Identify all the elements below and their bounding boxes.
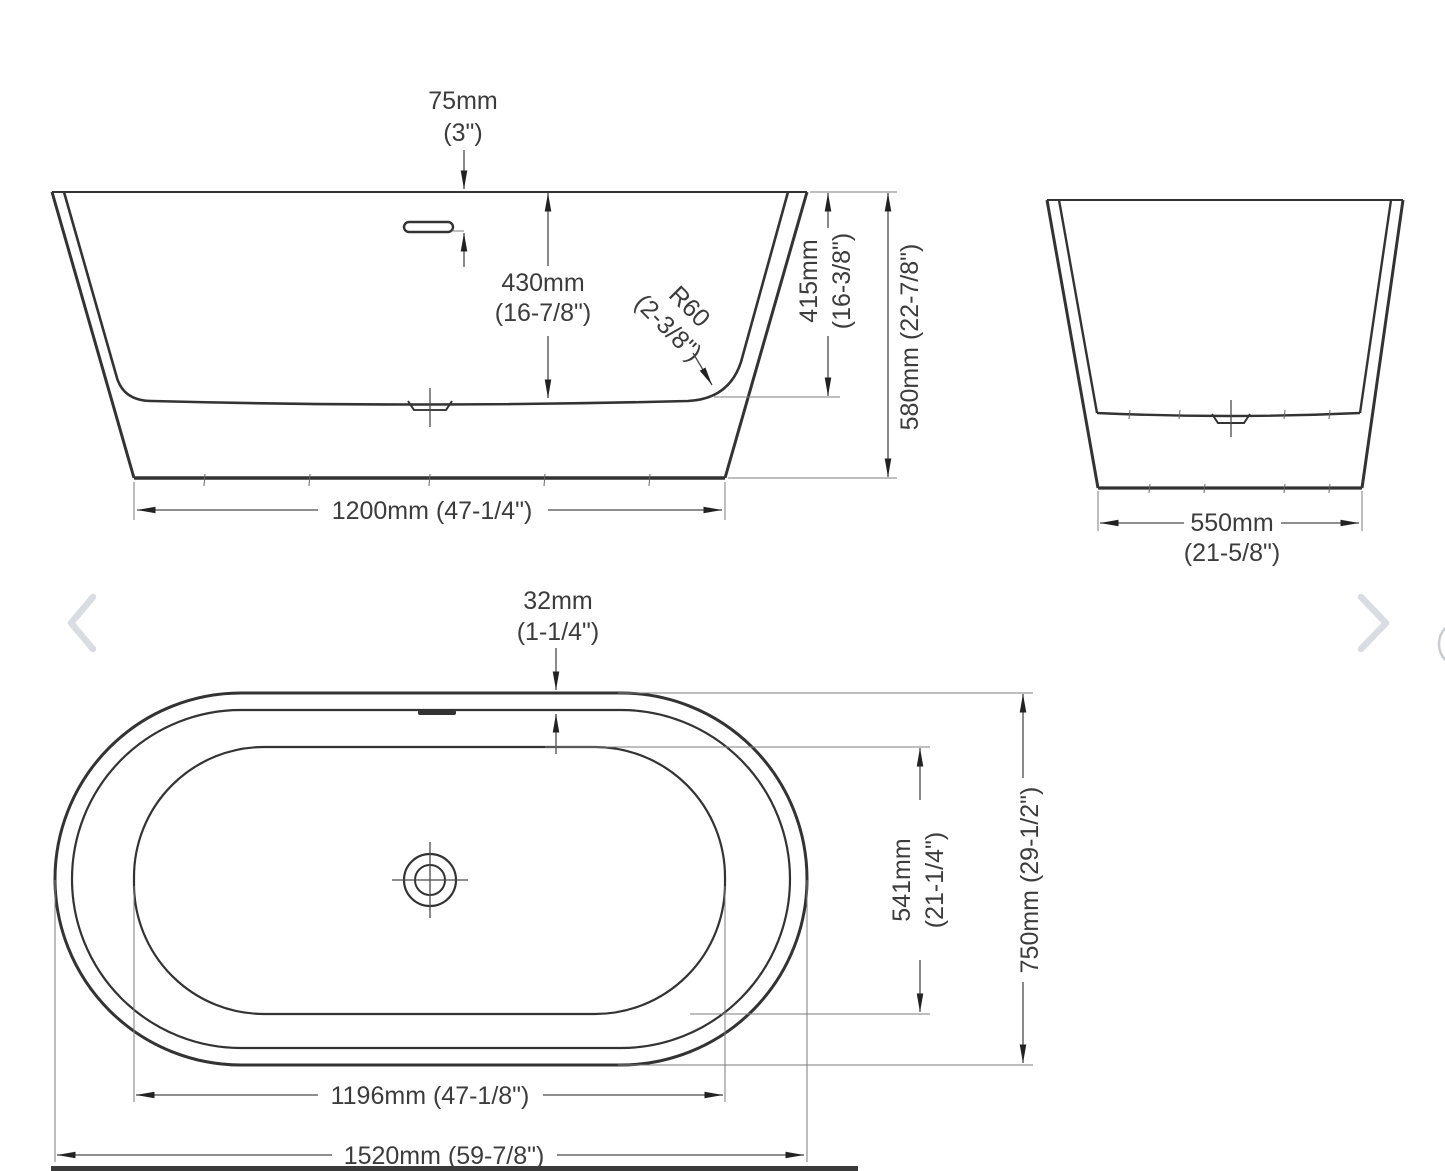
side-drain	[408, 388, 452, 427]
dim-base-width: 550mm (21-5/8")	[1098, 491, 1362, 567]
chevron-right-icon[interactable]	[1361, 597, 1386, 649]
inner-height-mm-label: 415mm	[795, 239, 823, 322]
plan-outer-rim	[55, 693, 807, 1065]
inner-depth-mm-label: 430mm	[501, 269, 584, 297]
inner-height-in-label: (16-3/8")	[828, 233, 856, 329]
dim-overall-length: 1520mm (59-7/8")	[55, 880, 807, 1170]
dim-inner-height: 415mm (16-3/8")	[714, 193, 856, 397]
dim-rim-width: 32mm (1-1/4")	[517, 587, 600, 754]
plan-rim-inner-edge	[72, 710, 790, 1048]
plan-view: 32mm (1-1/4") 541mm (21-1/4") 750mm (29-…	[55, 587, 1044, 1170]
base-length-label: 1200mm (47-1/4")	[332, 497, 533, 525]
overflow-height-in-label: (3")	[443, 119, 482, 147]
rim-width-mm-label: 32mm	[523, 587, 592, 615]
edge-circle-button[interactable]	[1439, 621, 1445, 667]
base-width-in-label: (21-5/8")	[1184, 539, 1280, 567]
overflow-height-mm-label: 75mm	[428, 87, 497, 115]
technical-drawing-page: 75mm (3") 430mm (16-7/8") R60 (2-3/8")	[0, 0, 1445, 1171]
rim-width-in-label: (1-1/4")	[517, 618, 600, 646]
base-width-mm-label: 550mm	[1190, 509, 1273, 537]
dim-overall-height: 580mm (22-7/8")	[728, 192, 924, 478]
dim-overall-width: 750mm (29-1/2")	[618, 693, 1044, 1065]
end-outer-walls	[1047, 200, 1403, 488]
overflow-slot	[404, 222, 453, 232]
inner-width-in-label: (21-1/4")	[921, 832, 949, 928]
inner-width-mm-label: 541mm	[888, 838, 916, 921]
inner-length-label: 1196mm (47-1/8")	[331, 1082, 530, 1110]
dim-overflow-height: 75mm (3")	[428, 87, 497, 267]
overall-width-label: 750mm (29-1/2")	[1016, 787, 1044, 974]
bathtub-dimension-drawing: 75mm (3") 430mm (16-7/8") R60 (2-3/8")	[0, 0, 1445, 1171]
plan-drain	[392, 842, 468, 918]
overall-height-label: 580mm (22-7/8")	[896, 244, 924, 431]
end-inner-walls	[1059, 200, 1391, 413]
end-drain	[1212, 400, 1250, 437]
overall-length-label: 1520mm (59-7/8")	[344, 1142, 545, 1170]
plan-overflow-slot	[418, 710, 456, 715]
side-elevation-view: 75mm (3") 430mm (16-7/8") R60 (2-3/8")	[52, 87, 924, 525]
chevron-left-icon[interactable]	[71, 597, 93, 649]
end-inner-bottom-line	[1097, 413, 1360, 416]
dim-inner-length: 1196mm (47-1/8")	[134, 886, 725, 1110]
bottom-edge-band	[51, 1166, 858, 1171]
dim-inner-width: 541mm (21-1/4")	[545, 747, 949, 1014]
end-elevation-view: 550mm (21-5/8")	[1047, 200, 1403, 567]
inner-depth-in-label: (16-7/8")	[495, 299, 591, 327]
dim-base-length: 1200mm (47-1/4")	[134, 482, 725, 525]
dim-corner-radius: R60 (2-3/8")	[629, 268, 728, 385]
dim-inner-depth: 430mm (16-7/8")	[495, 193, 591, 398]
side-bottom-ticks	[204, 474, 650, 486]
